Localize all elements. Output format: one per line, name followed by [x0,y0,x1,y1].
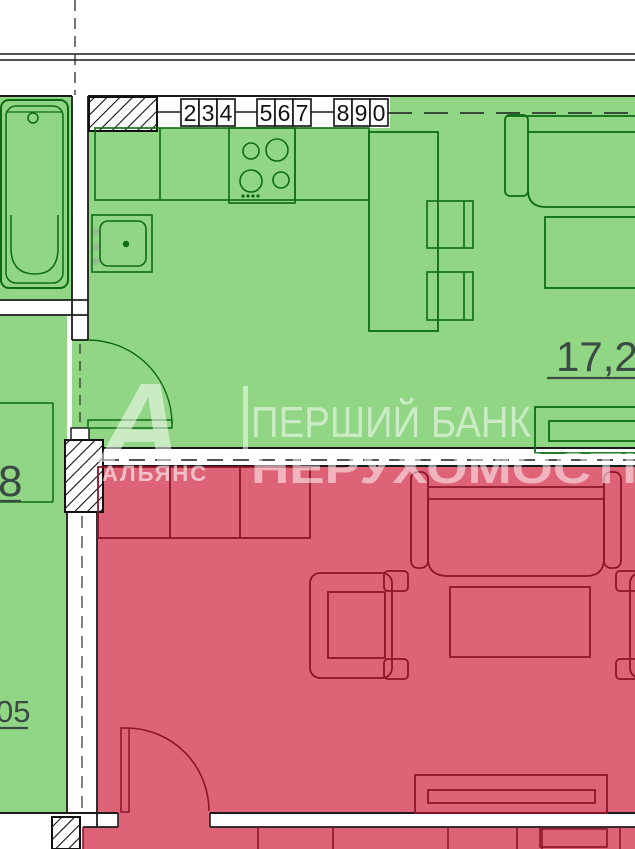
marker-digit: 4 [220,100,233,126]
bathroom-floor [0,96,72,300]
marker-digit: 9 [355,100,368,126]
marker-digit: 3 [202,100,215,126]
watermark-title-line1: ПЕРШИЙ БАНК [251,396,531,447]
wall-hatch-top [89,97,157,131]
sink-drain [123,241,129,247]
marker-boxes: 2 3 4 5 6 7 8 9 0 [181,99,388,126]
area-label-kitchen-living: 17,28 [556,333,635,380]
bedroom-door-gap [118,813,210,829]
watermark-divider [243,386,248,456]
area-label-left-upper: 8 [0,457,22,506]
marker-digit: 5 [260,100,273,126]
floor-plan-canvas: 2 3 4 5 6 7 8 9 0 [0,0,635,849]
marker-digit: 6 [278,100,291,126]
marker-digit: 0 [373,100,386,126]
balcony-floor [83,827,635,849]
marker-digit: 2 [184,100,197,126]
area-label-left-lower: 05 [0,694,30,729]
marker-digit: 8 [337,100,350,126]
left-rooms-floor [0,315,67,813]
marker-digit: 7 [296,100,309,126]
wall-hatch-bottom [52,817,80,849]
watermark-title-line2: НЕРУХОМОСТІ [251,444,635,493]
bedroom-floor [97,467,635,813]
watermark-caption: АЛЬЯНС [102,461,208,486]
door-leaf [121,728,129,812]
floor-plan-page: 2 3 4 5 6 7 8 9 0 [0,0,635,849]
